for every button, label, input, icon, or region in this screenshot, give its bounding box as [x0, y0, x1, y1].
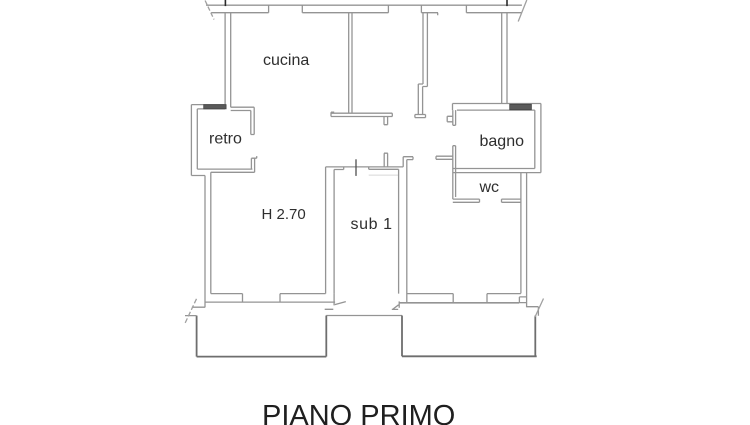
svg-text:bagno: bagno — [480, 133, 525, 150]
svg-text:PIANO PRIMO: PIANO PRIMO — [262, 400, 455, 425]
svg-text:retro: retro — [209, 131, 242, 148]
svg-text:wc: wc — [479, 179, 500, 196]
svg-text:H 2.70: H 2.70 — [262, 206, 306, 223]
svg-text:sub 1: sub 1 — [351, 216, 393, 233]
svg-text:cucina: cucina — [263, 52, 309, 69]
